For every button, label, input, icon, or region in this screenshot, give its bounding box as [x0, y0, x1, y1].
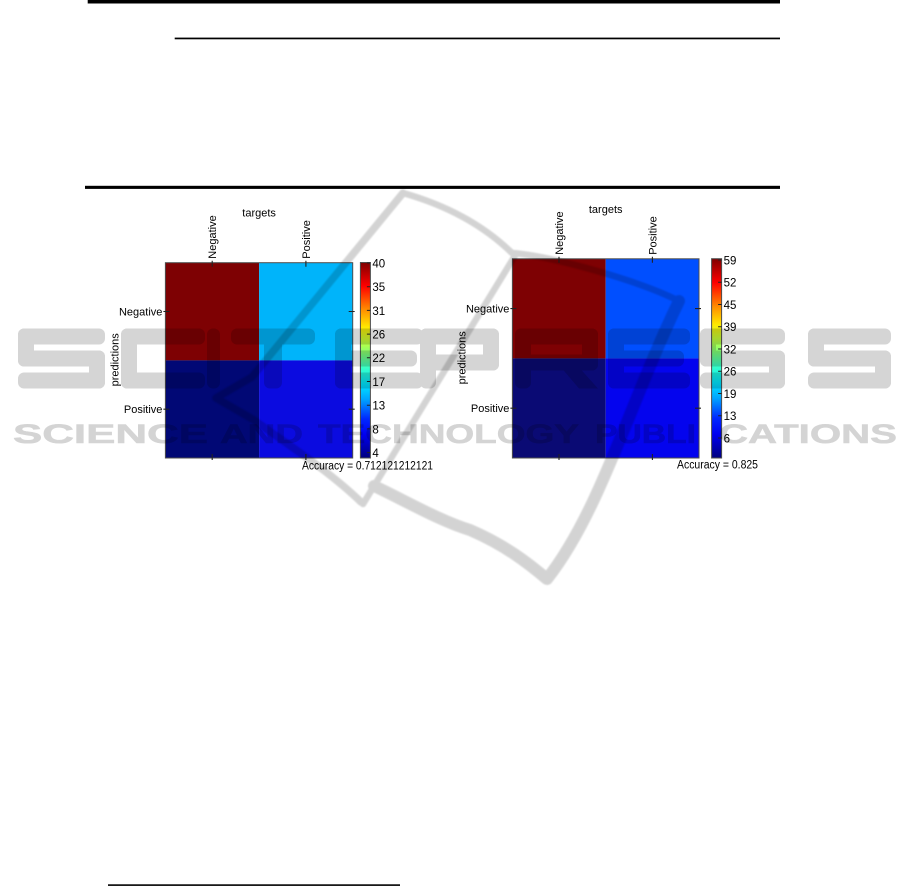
- svg-text:TECHNOLOGY: TECHNOLOGY: [318, 419, 579, 449]
- svg-text:19: 19: [724, 389, 737, 401]
- svg-text:Positive: Positive: [301, 220, 313, 259]
- svg-text:Negative: Negative: [207, 215, 219, 258]
- svg-text:SCIENCE: SCIENCE: [13, 419, 208, 449]
- svg-text:52: 52: [724, 278, 737, 290]
- svg-text:Negative: Negative: [554, 211, 566, 254]
- svg-text:predictions: predictions: [109, 333, 121, 387]
- svg-text:CATIONS: CATIONS: [719, 419, 897, 449]
- svg-text:31: 31: [372, 306, 385, 318]
- svg-text:Positive: Positive: [647, 216, 659, 255]
- svg-text:targets: targets: [589, 204, 623, 216]
- svg-text:Positive: Positive: [471, 403, 510, 415]
- svg-text:Positive: Positive: [124, 404, 163, 416]
- svg-text:AND: AND: [220, 419, 303, 449]
- svg-text:59: 59: [724, 255, 737, 267]
- svg-text:Accuracy = 0.825: Accuracy = 0.825: [677, 460, 758, 472]
- svg-text:35: 35: [372, 282, 385, 294]
- svg-text:40: 40: [372, 258, 385, 270]
- svg-text:PUBLI: PUBLI: [595, 419, 696, 449]
- svg-text:targets: targets: [242, 208, 276, 220]
- svg-text:13: 13: [372, 401, 385, 413]
- svg-text:45: 45: [724, 300, 737, 312]
- svg-text:4: 4: [372, 448, 379, 460]
- svg-text:Negative: Negative: [119, 307, 162, 319]
